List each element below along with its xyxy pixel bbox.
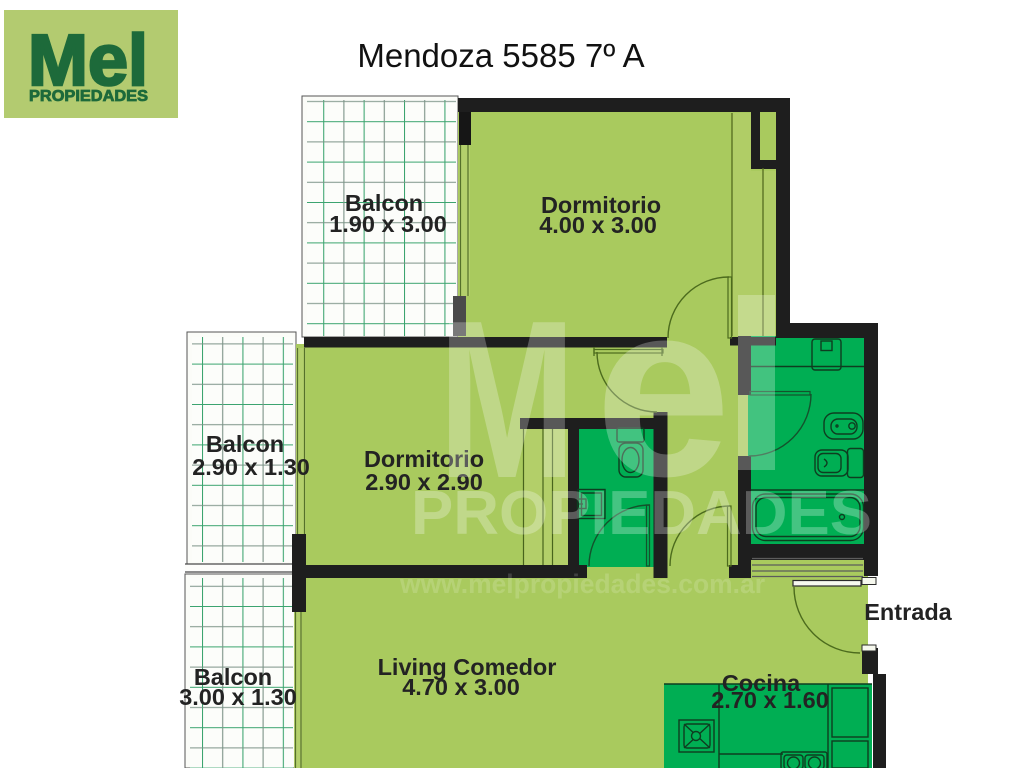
svg-text:PROPIEDADES: PROPIEDADES — [411, 479, 872, 548]
svg-text:4.70 x 3.00: 4.70 x 3.00 — [402, 674, 520, 700]
svg-text:4.00 x 3.00: 4.00 x 3.00 — [539, 212, 657, 238]
svg-text:www.melpropiedades.com.ar: www.melpropiedades.com.ar — [399, 569, 765, 599]
svg-text:Entrada: Entrada — [864, 599, 952, 625]
svg-text:3.00 x 1.30: 3.00 x 1.30 — [179, 684, 297, 710]
svg-text:1.90 x 3.00: 1.90 x 3.00 — [329, 211, 447, 237]
svg-text:Mendoza 5585 7º A: Mendoza 5585 7º A — [357, 37, 644, 74]
svg-text:PROPIEDADES: PROPIEDADES — [29, 88, 148, 105]
svg-text:2.70 x 1.60: 2.70 x 1.60 — [711, 687, 829, 713]
svg-text:2.90 x 1.30: 2.90 x 1.30 — [192, 454, 310, 480]
